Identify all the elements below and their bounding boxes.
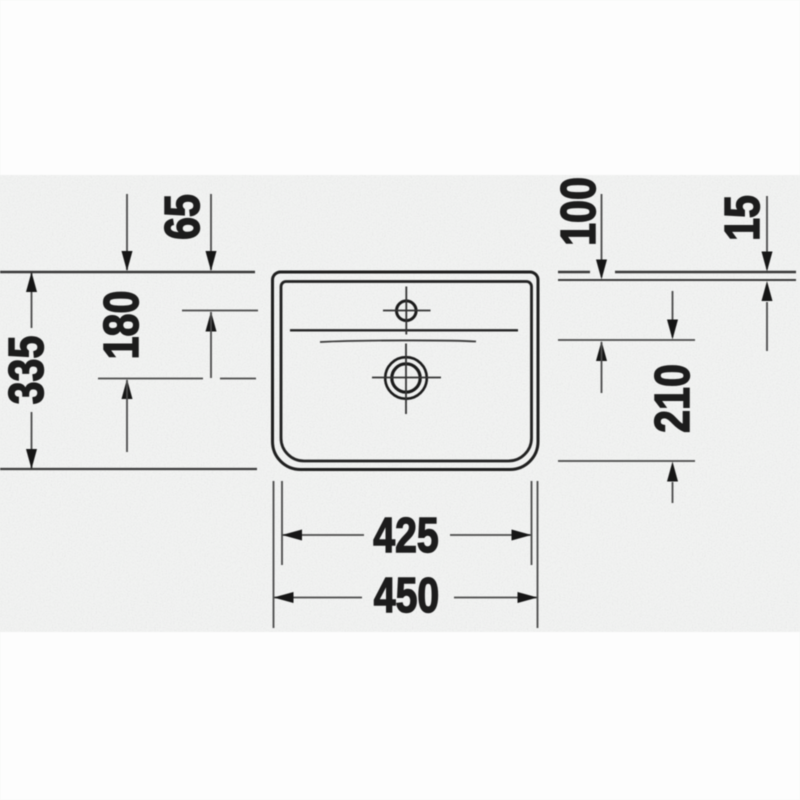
svg-text:425: 425: [373, 509, 438, 563]
svg-text:210: 210: [645, 364, 700, 433]
svg-text:335: 335: [0, 336, 54, 405]
svg-text:180: 180: [94, 291, 149, 360]
svg-text:15: 15: [715, 195, 770, 241]
svg-text:100: 100: [551, 177, 606, 246]
svg-text:450: 450: [374, 569, 439, 623]
svg-text:65: 65: [155, 194, 210, 240]
